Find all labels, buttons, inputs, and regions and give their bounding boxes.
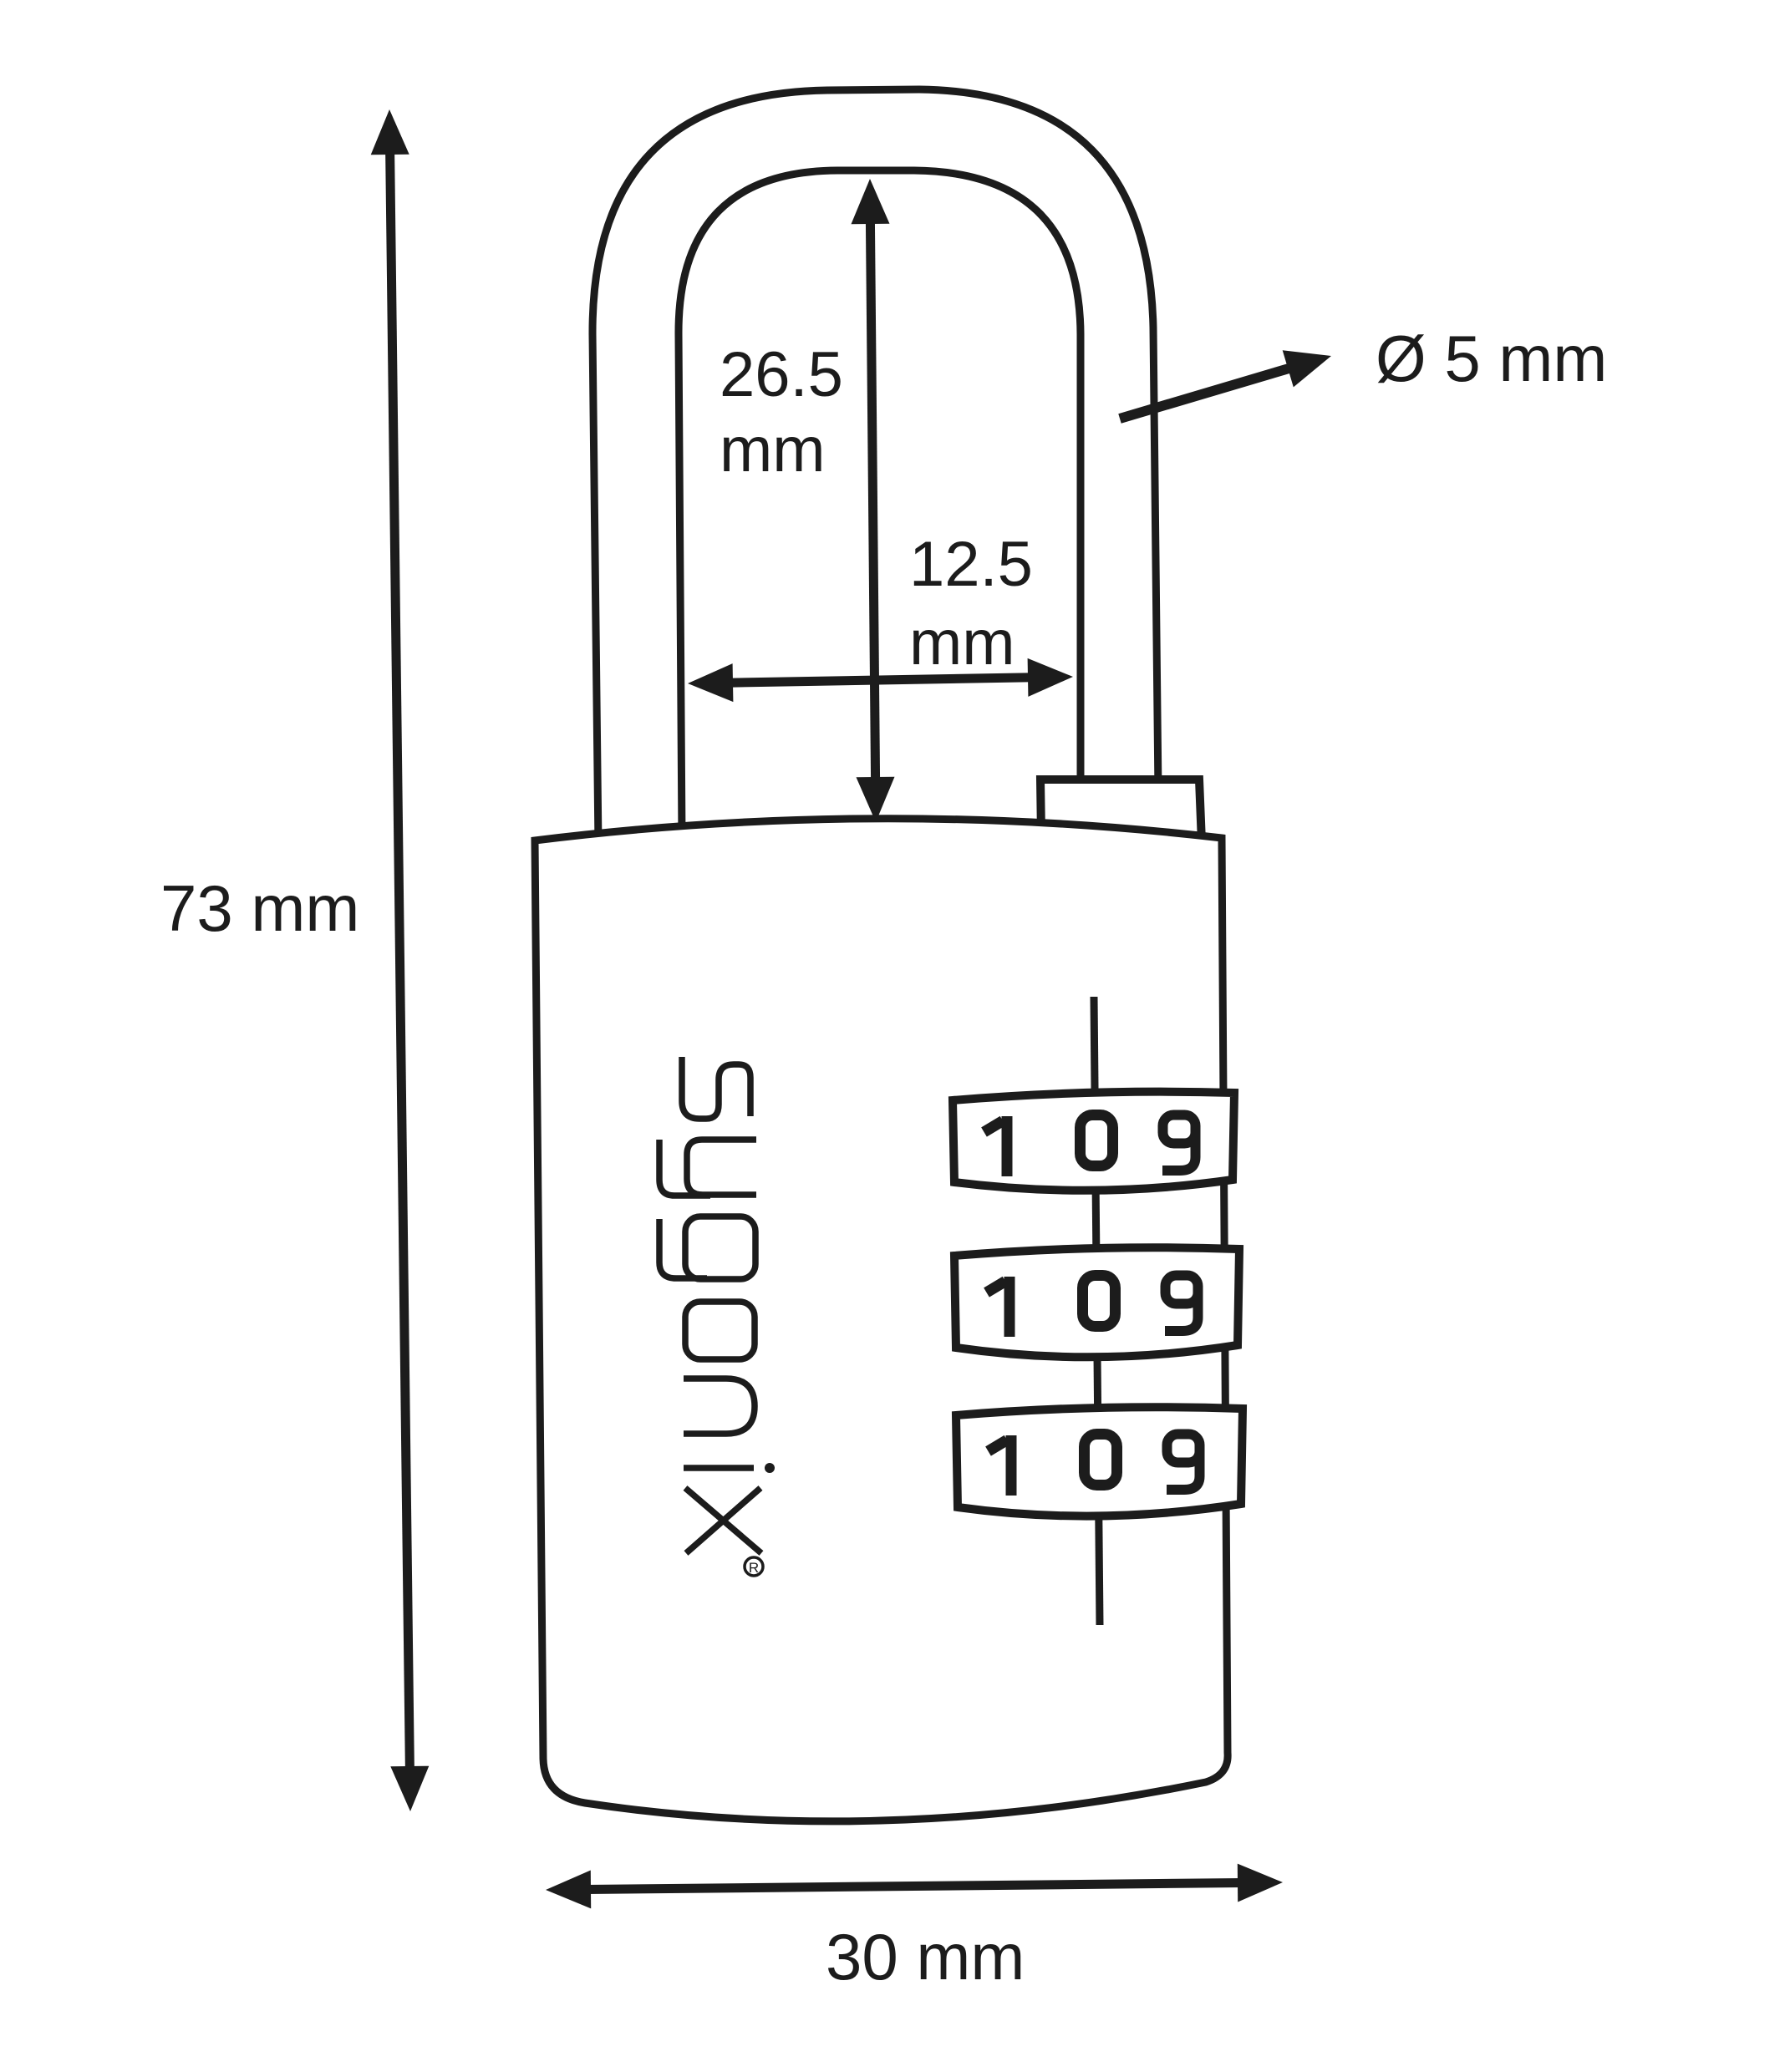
svg-text:30 mm: 30 mm [826,1920,1025,1993]
svg-text:mm: mm [720,414,826,485]
svg-text:Ø 5 mm: Ø 5 mm [1376,322,1607,395]
svg-text:R: R [749,1560,759,1576]
svg-text:73 mm: 73 mm [160,871,359,945]
svg-text:12.5: 12.5 [909,529,1033,600]
svg-text:26.5: 26.5 [720,339,843,410]
svg-text:mm: mm [909,607,1015,678]
